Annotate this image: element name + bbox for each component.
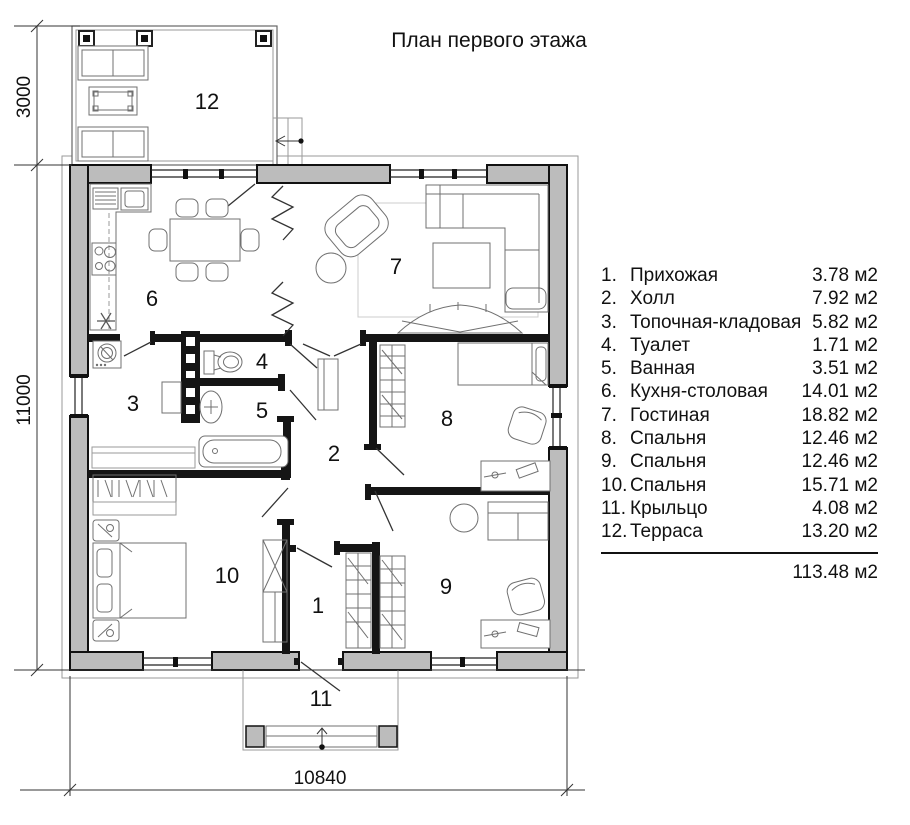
room10-door	[262, 488, 288, 517]
room-label-11: 11	[310, 686, 333, 711]
armchair-icon	[320, 190, 394, 263]
room-legend: 1.Прихожая3.78 м2 2.Холл7.92 м2 3.Топочн…	[601, 264, 878, 584]
legend-item: 3.Топочная-кладовая5.82 м2	[601, 311, 878, 334]
washing-machine-icon	[93, 341, 121, 368]
legend-total: 113.48 м2	[601, 561, 878, 584]
room-label-4: 4	[256, 349, 268, 374]
legend-separator	[601, 552, 878, 554]
desk-chair-icon	[506, 405, 549, 447]
terrace-door	[228, 184, 255, 206]
dimension-house-width: 10840	[294, 768, 347, 789]
room-label-10: 10	[215, 563, 239, 588]
toilet-furniture	[204, 351, 242, 374]
window-room9	[431, 657, 497, 667]
terrace	[72, 26, 304, 165]
legend-item: 10.Спальня15.71 м2	[601, 474, 878, 497]
window-room8	[549, 384, 567, 450]
room-label-5: 5	[256, 398, 268, 423]
side-table-icon	[316, 253, 346, 283]
pouf-icon	[450, 504, 478, 532]
legend-item: 1.Прихожая3.78 м2	[601, 264, 878, 287]
bath-door	[290, 390, 316, 420]
window-living	[390, 169, 487, 179]
room3-door	[124, 342, 151, 356]
wc-icon	[204, 351, 242, 374]
legend-item: 2.Холл7.92 м2	[601, 287, 878, 310]
dimension-house-depth: 11000	[14, 374, 35, 425]
desk-chair-icon	[505, 576, 546, 617]
hall-console-icon	[318, 359, 338, 410]
room10-furniture	[93, 475, 287, 642]
window-room3	[70, 374, 88, 418]
storage-shelf-icon	[92, 447, 195, 468]
toilet-door	[290, 344, 317, 368]
room-label-6: 6	[146, 286, 158, 311]
hall-opening-left	[303, 344, 330, 356]
room-label-7: 7	[390, 254, 402, 279]
boiler-icon	[162, 382, 181, 413]
nightstand-icon	[93, 520, 119, 541]
desk-icon	[481, 620, 550, 648]
window-room10	[143, 657, 212, 667]
bathroom-furniture	[199, 391, 288, 467]
wardrobe-icon	[380, 345, 405, 427]
legend-item: 8.Спальня12.46 м2	[601, 427, 878, 450]
room8-furniture	[380, 343, 550, 491]
room-label-9: 9	[440, 574, 452, 599]
room3-furniture	[92, 341, 195, 468]
double-bed-icon	[93, 543, 186, 618]
floor-plan-page: 3000 11000 10840 1 2 3 4 5 6 7 8 9 10 11…	[0, 0, 910, 825]
room-label-1: 1	[312, 593, 324, 618]
legend-item: 6.Кухня-столовая14.01 м2	[601, 380, 878, 403]
cabinet-icon	[488, 502, 548, 540]
legend-item: 5.Ванная3.51 м2	[601, 357, 878, 380]
legend-item: 4.Туалет1.71 м2	[601, 334, 878, 357]
chimney	[181, 331, 200, 423]
hall-opening-right	[334, 344, 361, 356]
room-label-8: 8	[441, 406, 453, 431]
legend-item: 9.Спальня12.46 м2	[601, 450, 878, 473]
coffee-table-icon	[433, 243, 490, 288]
living-furniture	[316, 185, 548, 333]
bathtub-icon	[199, 436, 288, 467]
dining-table-icon	[149, 199, 259, 281]
nightstand-icon	[93, 620, 119, 641]
room9-door	[375, 491, 393, 531]
kitchen-furniture	[90, 184, 259, 330]
zigzag-break-icon	[272, 186, 293, 240]
legend-item: 7.Гостиная18.82 м2	[601, 404, 878, 427]
bed-icon	[458, 343, 548, 385]
window-terrace	[151, 169, 257, 179]
room8-door	[376, 448, 404, 475]
room-label-3: 3	[127, 391, 139, 416]
page-title: План первого этажа	[391, 29, 587, 52]
legend-item: 12.Терраса13.20 м2	[601, 520, 878, 543]
legend-item: 11.Крыльцо4.08 м2	[601, 497, 878, 520]
porch-post-icon	[379, 726, 397, 747]
washbasin-icon	[200, 391, 222, 423]
desk-icon	[481, 461, 550, 491]
room-label-2: 2	[328, 441, 340, 466]
wardrobe-icon	[346, 553, 371, 648]
dimension-terrace-depth: 3000	[14, 76, 35, 118]
porch-steps-icon	[266, 726, 377, 750]
wardrobe-icon	[380, 556, 405, 648]
room1-door	[297, 548, 332, 567]
zigzag-break-icon	[272, 282, 293, 336]
closet-rod-icon	[93, 475, 176, 515]
terrace-table-icon	[89, 87, 137, 115]
room-label-12: 12	[195, 89, 219, 114]
porch-post-icon	[246, 726, 264, 747]
